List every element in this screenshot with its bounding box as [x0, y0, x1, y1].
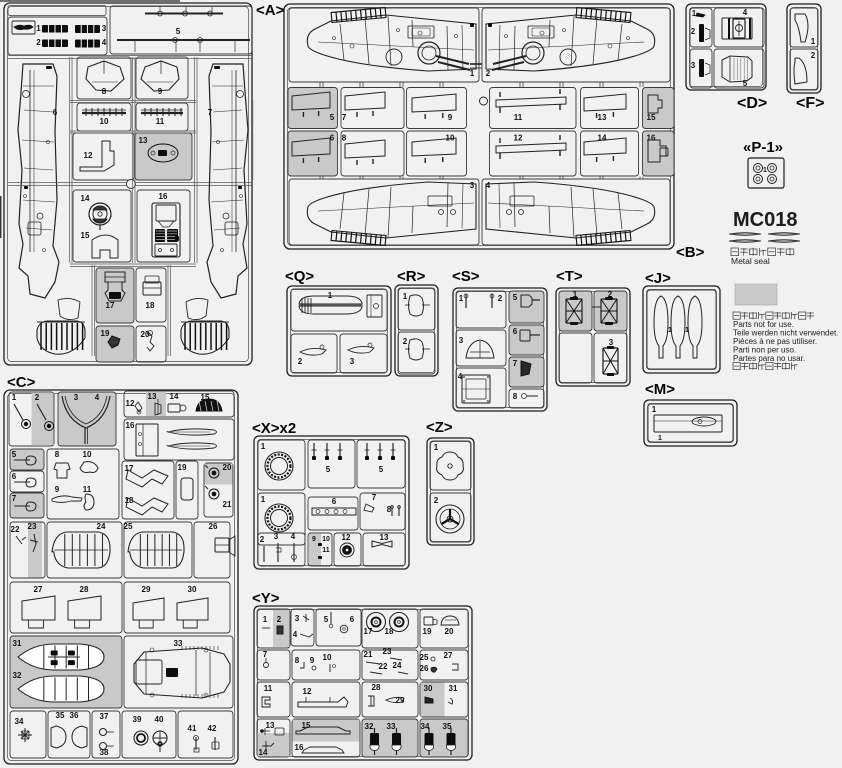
svg-text:1: 1	[668, 327, 672, 334]
svg-text:14: 14	[81, 194, 90, 203]
svg-text:4: 4	[743, 8, 748, 17]
svg-text:<M>: <M>	[645, 381, 675, 398]
svg-text:5: 5	[379, 465, 384, 474]
svg-text:9: 9	[55, 485, 60, 494]
svg-text:7: 7	[12, 494, 17, 503]
svg-text:<C>: <C>	[7, 374, 36, 391]
svg-text:21: 21	[364, 650, 373, 659]
svg-text:10: 10	[323, 653, 332, 662]
svg-text:3: 3	[609, 338, 614, 347]
svg-text:16: 16	[295, 743, 304, 752]
svg-text:12: 12	[303, 687, 312, 696]
svg-text:10: 10	[446, 134, 455, 143]
svg-text:<S>: <S>	[452, 268, 480, 285]
svg-text:16: 16	[159, 192, 168, 201]
svg-text:26: 26	[420, 664, 429, 673]
svg-text:31: 31	[13, 639, 22, 648]
svg-text:28: 28	[372, 683, 381, 692]
svg-text:33: 33	[174, 639, 183, 648]
svg-text:13: 13	[380, 533, 389, 542]
svg-text:1: 1	[434, 443, 439, 452]
svg-text:20: 20	[141, 330, 150, 339]
svg-text:9: 9	[158, 87, 163, 96]
svg-text:11: 11	[264, 684, 273, 693]
svg-text:2: 2	[691, 27, 696, 36]
svg-text:18: 18	[146, 301, 155, 310]
svg-text:2: 2	[498, 294, 503, 303]
svg-text:3: 3	[470, 181, 475, 190]
svg-text:1: 1	[36, 24, 41, 33]
svg-text:13: 13	[148, 392, 157, 401]
svg-text:37: 37	[100, 712, 109, 721]
svg-text:1: 1	[459, 294, 464, 303]
svg-text:14: 14	[170, 392, 179, 401]
svg-text:9: 9	[310, 656, 315, 665]
svg-text:2: 2	[811, 51, 816, 60]
svg-text:5: 5	[513, 293, 518, 302]
svg-text:20: 20	[445, 627, 454, 636]
svg-text:1: 1	[263, 615, 268, 624]
svg-text:11: 11	[83, 485, 92, 494]
svg-text:11: 11	[322, 547, 330, 554]
svg-text:15: 15	[81, 231, 90, 240]
svg-text:36: 36	[70, 711, 79, 720]
svg-text:<X>x2: <X>x2	[252, 420, 296, 437]
svg-text:<Q>: <Q>	[285, 268, 314, 285]
svg-text:1: 1	[403, 292, 408, 301]
svg-text:<Z>: <Z>	[426, 419, 453, 436]
svg-text:5: 5	[330, 113, 335, 122]
svg-text:1: 1	[261, 495, 266, 504]
svg-text:34: 34	[15, 717, 24, 726]
svg-text:12: 12	[514, 134, 523, 143]
svg-text:30: 30	[188, 585, 197, 594]
svg-text:19: 19	[101, 329, 110, 338]
svg-text:3: 3	[350, 357, 355, 366]
svg-text:10: 10	[100, 117, 109, 126]
svg-text:9: 9	[448, 113, 453, 122]
svg-text:5: 5	[326, 465, 331, 474]
svg-text:1: 1	[261, 442, 266, 451]
svg-text:6: 6	[330, 134, 335, 143]
svg-text:17: 17	[125, 464, 134, 473]
svg-text:30: 30	[424, 684, 433, 693]
svg-text:41: 41	[188, 724, 197, 733]
svg-text:33: 33	[387, 722, 396, 731]
svg-text:3: 3	[459, 336, 464, 345]
svg-text:15: 15	[647, 113, 656, 122]
svg-text:24: 24	[97, 522, 106, 531]
svg-text:4: 4	[102, 38, 107, 47]
svg-text:1: 1	[763, 167, 767, 174]
svg-text:3: 3	[274, 532, 279, 541]
svg-text:28: 28	[80, 585, 89, 594]
svg-text:<F>: <F>	[796, 95, 824, 112]
svg-text:14: 14	[598, 134, 607, 143]
svg-text:3: 3	[691, 61, 696, 70]
svg-text:8: 8	[102, 87, 107, 96]
svg-text:32: 32	[13, 671, 22, 680]
svg-text:16: 16	[647, 134, 656, 143]
svg-text:6: 6	[350, 615, 355, 624]
svg-text:25: 25	[124, 522, 133, 531]
svg-text:19: 19	[423, 627, 432, 636]
svg-text:Partes para no usar.: Partes para no usar.	[733, 354, 805, 363]
svg-text:8: 8	[295, 656, 300, 665]
svg-text:9: 9	[312, 536, 316, 543]
svg-text:1: 1	[652, 405, 657, 414]
svg-text:8: 8	[513, 392, 518, 401]
svg-text:22: 22	[379, 662, 388, 671]
svg-text:1: 1	[685, 327, 689, 334]
svg-text:1: 1	[12, 393, 17, 402]
svg-text:13: 13	[598, 113, 607, 122]
svg-text:1: 1	[470, 69, 475, 78]
svg-text:15: 15	[302, 721, 311, 730]
svg-text:8: 8	[387, 505, 392, 514]
svg-text:1: 1	[811, 37, 816, 46]
svg-text:8: 8	[342, 134, 347, 143]
svg-text:26: 26	[209, 522, 218, 531]
svg-text:7: 7	[513, 359, 518, 368]
svg-text:7: 7	[342, 113, 347, 122]
svg-text:2: 2	[277, 615, 282, 624]
svg-text:31: 31	[449, 684, 458, 693]
svg-text:13: 13	[139, 136, 148, 145]
svg-text:42: 42	[208, 724, 217, 733]
svg-text:MC018: MC018	[733, 209, 797, 231]
svg-text:2: 2	[35, 393, 40, 402]
svg-text:4: 4	[291, 532, 296, 541]
svg-text:21: 21	[223, 500, 232, 509]
svg-text:5: 5	[324, 615, 329, 624]
svg-text:22: 22	[11, 525, 20, 534]
svg-text:<T>: <T>	[556, 268, 583, 285]
svg-text:39: 39	[133, 715, 142, 724]
svg-text:12: 12	[126, 399, 135, 408]
svg-text:23: 23	[383, 647, 392, 656]
svg-text:7: 7	[372, 493, 377, 502]
svg-text:6: 6	[332, 497, 337, 506]
svg-text:27: 27	[444, 651, 453, 660]
svg-text:24: 24	[393, 661, 402, 670]
svg-text:3: 3	[295, 614, 300, 623]
svg-text:29: 29	[142, 585, 151, 594]
svg-text:2: 2	[260, 535, 265, 544]
svg-text:5: 5	[12, 450, 17, 459]
svg-text:1: 1	[658, 435, 662, 442]
svg-text:40: 40	[155, 715, 164, 724]
svg-text:17: 17	[106, 301, 115, 310]
svg-text:20: 20	[223, 463, 232, 472]
svg-text:2: 2	[403, 337, 408, 346]
svg-text:23: 23	[28, 522, 37, 531]
svg-text:<R>: <R>	[397, 268, 426, 285]
svg-text:6: 6	[12, 472, 17, 481]
svg-text:8: 8	[55, 450, 60, 459]
svg-text:1: 1	[692, 9, 697, 18]
svg-text:6: 6	[513, 327, 518, 336]
svg-text:6: 6	[53, 108, 58, 117]
svg-text:35: 35	[56, 711, 65, 720]
svg-text:4: 4	[486, 181, 491, 190]
svg-text:10: 10	[322, 536, 330, 543]
svg-text:12: 12	[84, 151, 93, 160]
svg-text:<Y>: <Y>	[252, 590, 280, 607]
svg-text:14: 14	[259, 748, 268, 757]
svg-text:Metal seal: Metal seal	[731, 256, 770, 266]
svg-text:5: 5	[176, 27, 181, 36]
svg-text:<B>: <B>	[676, 244, 705, 261]
svg-text:<D>: <D>	[737, 95, 767, 112]
svg-text:12: 12	[342, 533, 351, 542]
svg-text:2: 2	[486, 69, 491, 78]
svg-text:4: 4	[95, 393, 100, 402]
svg-text:11: 11	[514, 113, 523, 122]
svg-text:«P-1»: «P-1»	[743, 139, 783, 156]
svg-text:2: 2	[298, 357, 303, 366]
svg-text:13: 13	[266, 721, 275, 730]
svg-text:16: 16	[126, 421, 135, 430]
svg-text:7: 7	[263, 650, 268, 659]
svg-text:25: 25	[420, 653, 429, 662]
svg-text:<A>: <A>	[256, 2, 285, 19]
svg-text:19: 19	[178, 463, 187, 472]
svg-text:10: 10	[83, 450, 92, 459]
svg-text:4: 4	[293, 630, 298, 639]
svg-text:3: 3	[74, 393, 79, 402]
svg-text:<J>: <J>	[645, 270, 671, 287]
svg-text:3: 3	[102, 24, 107, 33]
svg-text:27: 27	[34, 585, 43, 594]
svg-text:2: 2	[36, 38, 41, 47]
svg-text:11: 11	[156, 117, 165, 126]
svg-text:32: 32	[365, 722, 374, 731]
svg-text:7: 7	[208, 108, 213, 117]
svg-text:2: 2	[434, 496, 439, 505]
